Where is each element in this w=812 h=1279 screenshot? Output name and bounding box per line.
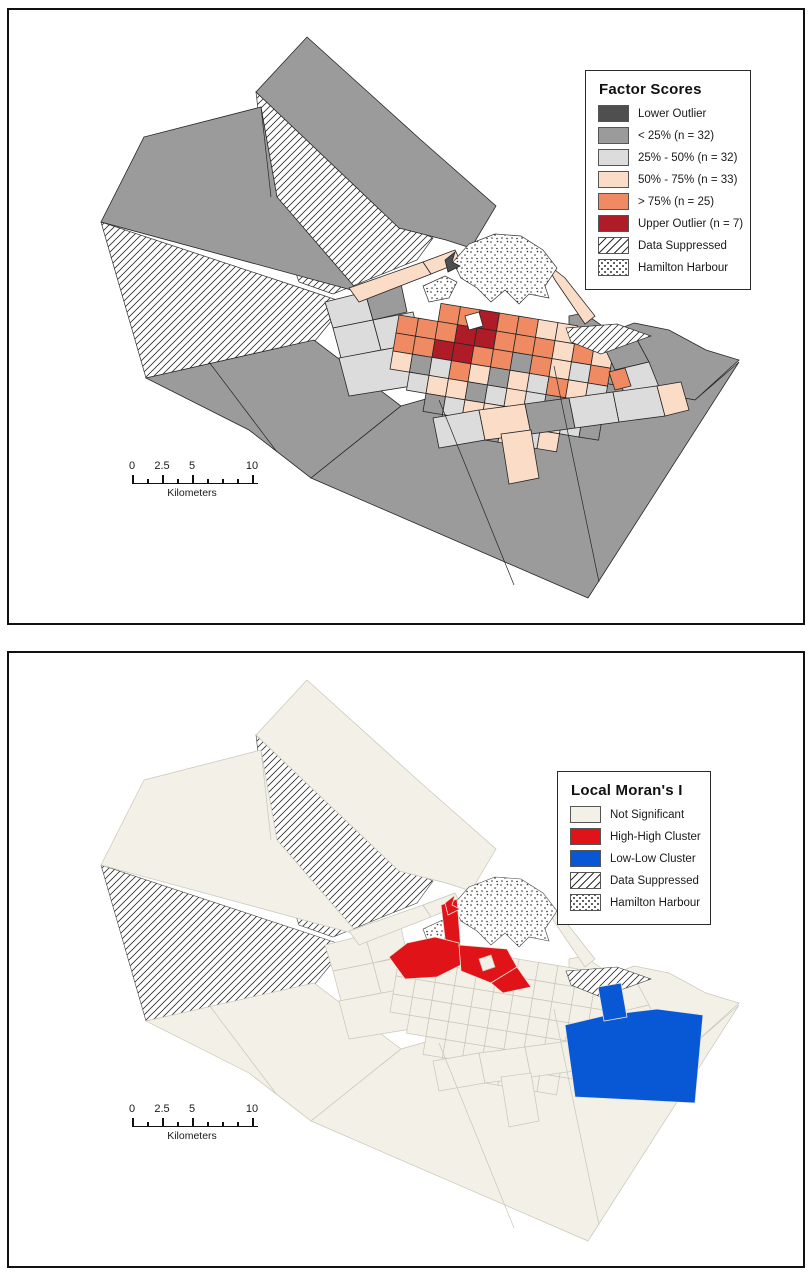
legend-item-label: 25% - 50% (n = 32)	[638, 152, 737, 164]
tract	[465, 382, 488, 403]
tract	[423, 1036, 446, 1057]
tract	[471, 989, 494, 1010]
legend-item: Data Suppressed	[570, 872, 698, 889]
tract	[446, 379, 469, 400]
tract	[533, 337, 556, 358]
tract	[432, 339, 455, 360]
tract	[468, 364, 491, 385]
tract	[552, 341, 575, 362]
mountain-3	[525, 1041, 575, 1077]
tract	[449, 1004, 472, 1025]
tract	[488, 1010, 511, 1031]
legend-item-label: Upper Outlier (n = 7)	[638, 218, 743, 230]
legend-item: Not Significant	[570, 806, 698, 823]
tract	[507, 370, 530, 391]
legend-item-label: 50% - 75% (n = 33)	[638, 174, 737, 186]
legend-item: 25% - 50% (n = 32)	[598, 149, 738, 166]
legend-item-label: Hamilton Harbour	[638, 262, 728, 274]
tract	[588, 365, 611, 386]
lt25-swatch	[598, 127, 629, 144]
tract	[485, 1028, 508, 1049]
tract	[491, 992, 514, 1013]
legend-item: Low-Low Cluster	[570, 850, 698, 867]
tract	[491, 349, 514, 370]
scale-tick-label: 2.5	[154, 460, 169, 472]
tract	[536, 962, 559, 983]
legend-title: Factor Scores	[599, 81, 738, 98]
high-high-swatch	[570, 828, 601, 845]
legend-title: Local Moran's I	[571, 782, 698, 799]
tract	[546, 1020, 569, 1041]
scale-tick-label: 10	[246, 1103, 258, 1115]
legend-item: Data Suppressed	[598, 237, 738, 254]
figure-page: Factor Scores Lower Outlier < 25% (n = 3…	[0, 0, 812, 1279]
mountain-3	[525, 398, 575, 434]
tract	[536, 319, 559, 340]
legend-item: 50% - 75% (n = 33)	[598, 171, 738, 188]
scale-unit-label: Kilometers	[167, 1130, 217, 1142]
tract	[465, 1025, 488, 1046]
tract	[510, 352, 533, 373]
factor-scores-panel: Factor Scores Lower Outlier < 25% (n = 3…	[7, 8, 805, 625]
hamilton-harbour	[453, 877, 557, 947]
data-suppressed-swatch	[570, 872, 601, 889]
scale-tick-label: 2.5	[154, 1103, 169, 1115]
cootes-paradise	[423, 276, 457, 302]
tract	[435, 321, 458, 342]
tract	[452, 986, 475, 1007]
scale-tick-label: 10	[246, 460, 258, 472]
low-low-swatch	[570, 850, 601, 867]
local-morans-panel: Local Moran's I Not Significant High-Hig…	[7, 651, 805, 1268]
gt75-swatch	[598, 193, 629, 210]
tract	[552, 984, 575, 1005]
tract	[438, 303, 461, 324]
legend-item: Upper Outlier (n = 7)	[598, 215, 738, 232]
tract	[513, 334, 536, 355]
tract	[410, 354, 433, 375]
tract	[413, 979, 436, 1000]
legend-item-label: Low-Low Cluster	[610, 853, 696, 865]
tract	[407, 1015, 430, 1036]
tract	[429, 1000, 452, 1021]
tract	[537, 1074, 560, 1095]
legend-item-label: Not Significant	[610, 809, 684, 821]
q25-50-swatch	[598, 149, 629, 166]
tract	[474, 328, 497, 349]
tract	[429, 357, 452, 378]
tract	[527, 1016, 550, 1037]
legend-item-label: Lower Outlier	[638, 108, 706, 120]
tract	[452, 343, 475, 364]
tract	[549, 1002, 572, 1023]
tract	[471, 346, 494, 367]
scale-tick-label: 0	[129, 460, 135, 472]
local-morans-legend: Local Moran's I Not Significant High-Hig…	[557, 771, 711, 925]
not-significant-swatch	[570, 806, 601, 823]
local-morans-map	[9, 653, 803, 1266]
scale-bar-track	[126, 475, 259, 484]
tract	[426, 1018, 449, 1039]
factor-scores-legend: Factor Scores Lower Outlier < 25% (n = 3…	[585, 70, 751, 290]
legend-item: > 75% (n = 25)	[598, 193, 738, 210]
legend-item: Hamilton Harbour	[570, 894, 698, 911]
tract	[530, 998, 553, 1019]
upper-outlier-swatch	[598, 215, 629, 232]
tract	[416, 318, 439, 339]
scale-bar: 0 2.5 5 10 Kilometers	[126, 1103, 266, 1147]
legend-item-label: Hamilton Harbour	[610, 897, 700, 909]
tract	[516, 316, 539, 337]
tract	[569, 362, 592, 383]
tract	[407, 372, 430, 393]
tract	[485, 385, 508, 406]
tract	[449, 361, 472, 382]
legend-item: Hamilton Harbour	[598, 259, 738, 276]
hamilton-harbour-swatch	[598, 259, 629, 276]
tract	[546, 377, 569, 398]
legend-item-label: High-High Cluster	[610, 831, 701, 843]
scale-tick-label: 5	[189, 460, 195, 472]
scale-bar: 0 2.5 5 10 Kilometers	[126, 460, 266, 504]
tract	[533, 980, 556, 1001]
tract	[423, 393, 446, 414]
legend-item-label: Data Suppressed	[638, 240, 727, 252]
tract	[426, 375, 449, 396]
scale-tick-label: 5	[189, 1103, 195, 1115]
tract	[410, 997, 433, 1018]
legend-item: < 25% (n = 32)	[598, 127, 738, 144]
hamilton-harbour-swatch	[570, 894, 601, 911]
tract	[494, 331, 517, 352]
tract	[527, 373, 550, 394]
tract	[446, 1022, 469, 1043]
tract	[549, 359, 572, 380]
tract	[530, 355, 553, 376]
lower-outlier-swatch	[598, 105, 629, 122]
tract	[507, 1013, 530, 1034]
legend-item-label: Data Suppressed	[610, 875, 699, 887]
legend-item: High-High Cluster	[570, 828, 698, 845]
tract	[393, 333, 416, 354]
tract	[390, 994, 413, 1015]
hamilton-harbour	[453, 234, 557, 304]
tract	[432, 982, 455, 1003]
tract	[510, 995, 533, 1016]
tract	[413, 336, 436, 357]
scale-tick-label: 0	[129, 1103, 135, 1115]
legend-item: Lower Outlier	[598, 105, 738, 122]
tract	[393, 976, 416, 997]
data-suppressed-swatch	[598, 237, 629, 254]
q50-75-swatch	[598, 171, 629, 188]
scale-bar-track	[126, 1118, 259, 1127]
tract	[468, 1007, 491, 1028]
tract	[537, 431, 560, 452]
scale-unit-label: Kilometers	[167, 487, 217, 499]
ll-main	[565, 1009, 703, 1103]
tract	[396, 315, 419, 336]
tract	[497, 313, 520, 334]
mountain-4	[569, 392, 619, 428]
tract	[488, 367, 511, 388]
legend-item-label: < 25% (n = 32)	[638, 130, 714, 142]
mountain-6	[613, 386, 665, 422]
tract	[390, 351, 413, 372]
legend-item-label: > 75% (n = 25)	[638, 196, 714, 208]
